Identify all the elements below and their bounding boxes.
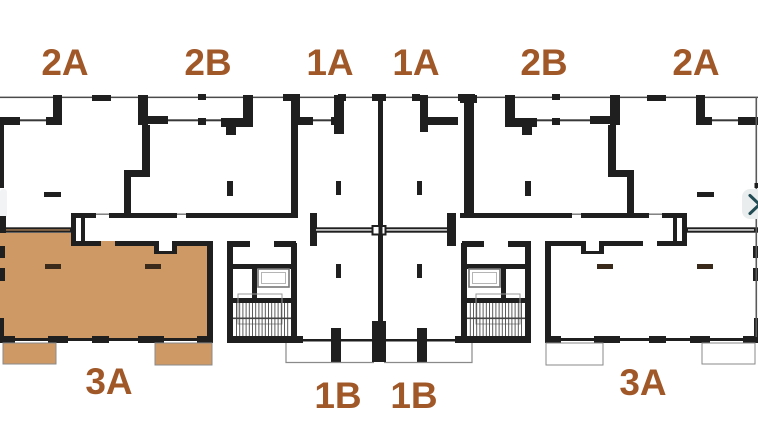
svg-text:2A: 2A <box>41 42 88 83</box>
svg-text:1A: 1A <box>306 42 353 83</box>
svg-text:1A: 1A <box>392 42 439 83</box>
svg-text:2B: 2B <box>520 42 567 83</box>
svg-text:3A: 3A <box>85 361 132 402</box>
svg-text:3A: 3A <box>619 362 666 403</box>
svg-text:2B: 2B <box>184 42 231 83</box>
svg-text:2A: 2A <box>672 42 719 83</box>
svg-text:1B: 1B <box>390 375 437 416</box>
svg-text:1B: 1B <box>314 375 361 416</box>
